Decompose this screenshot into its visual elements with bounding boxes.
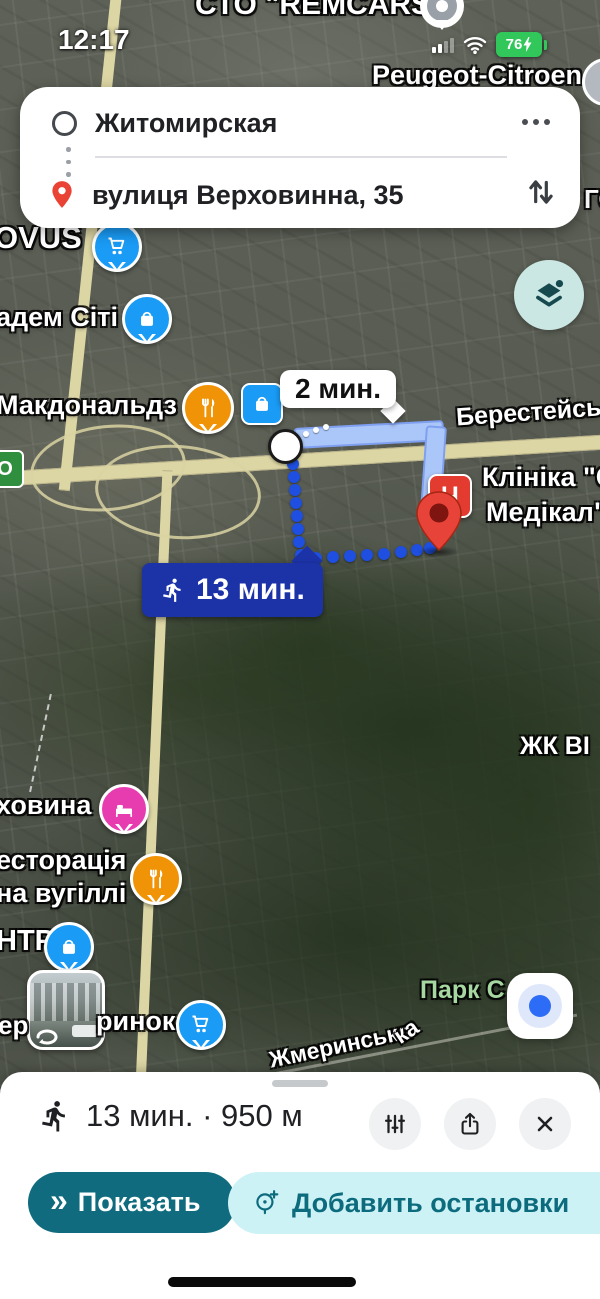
directions-bottom-sheet: 13 мин. · 950 м » <box>0 1072 600 1299</box>
map-layers-button[interactable] <box>514 260 584 330</box>
drive-time-bubble[interactable]: 2 мин. <box>280 370 396 408</box>
origin-value: Житомирская <box>95 108 277 139</box>
home-indicator <box>168 1277 356 1287</box>
poi-label-clinic-line2[interactable]: Медікал" <box>486 497 600 528</box>
mall-square-icon[interactable] <box>241 383 283 425</box>
supermarket-cart-pin[interactable] <box>92 222 142 272</box>
double-chevron-icon: » <box>50 1182 68 1219</box>
poi-label-zhk: ЖК ВІ <box>520 732 590 761</box>
gray-pin-hole <box>436 0 448 12</box>
park-label: Парк С <box>420 976 505 1005</box>
cellular-signal-icon <box>432 36 454 53</box>
status-icons: 76 <box>432 32 542 57</box>
poi-label-restaurant-line2[interactable]: на вугіллі <box>0 878 126 909</box>
add-stops-label: Добавить остановки <box>292 1188 569 1219</box>
thumbnail-building <box>30 983 102 1021</box>
route-summary: 13 мин. · 950 м <box>38 1098 303 1134</box>
origin-circle-icon <box>52 111 77 136</box>
destination-pin-marker[interactable] <box>412 490 466 554</box>
route-options-button[interactable] <box>369 1098 421 1150</box>
layers-icon <box>530 276 568 314</box>
destination-field[interactable]: вулиця Верховинна, 35 <box>20 169 580 221</box>
poi-label-er: ер <box>0 1010 28 1041</box>
add-stops-button[interactable]: Добавить остановки <box>228 1172 600 1234</box>
route-origin-marker[interactable] <box>268 429 303 464</box>
share-icon <box>457 1111 483 1137</box>
poi-label-mcdonalds[interactable]: Макдональдз <box>0 390 177 421</box>
route-summary-text: 13 мин. · 950 м <box>86 1098 303 1134</box>
share-route-button[interactable] <box>444 1098 496 1150</box>
show-button-label: Показать <box>78 1187 201 1218</box>
thumbnail-vehicle <box>72 1025 98 1037</box>
swap-endpoints-button[interactable] <box>526 175 556 209</box>
shopping-bag-icon <box>58 936 80 958</box>
charging-bolt-icon <box>523 37 532 52</box>
close-icon <box>533 1112 557 1136</box>
restaurant-pin[interactable] <box>182 382 234 434</box>
card-divider <box>95 156 507 158</box>
mall-bag-pin[interactable] <box>122 294 172 344</box>
battery-percent: 76 <box>506 36 523 53</box>
mall-bag-pin[interactable] <box>44 922 94 972</box>
fork-knife-icon <box>144 867 168 891</box>
maps-app-screen: СТО "REMCARS" Peugeot-Citroen ГО 12:17 7… <box>0 0 600 1299</box>
poi-label-hovyna[interactable]: ховина <box>0 790 91 821</box>
walk-time-label[interactable]: 13 мин. <box>142 563 323 617</box>
poi-label-akadem-siti[interactable]: адем Сіті <box>0 302 118 333</box>
restaurant-pin[interactable] <box>130 853 182 905</box>
origin-field[interactable]: Житомирская <box>20 95 580 151</box>
hotel-pin[interactable] <box>99 784 149 834</box>
route-card: Житомирская вулиця Верховинна, 35 <box>20 87 580 228</box>
wifi-icon <box>463 36 487 54</box>
bed-icon <box>112 797 136 821</box>
destination-value: вулиця Верховинна, 35 <box>92 180 404 211</box>
street-view-thumbnail[interactable] <box>27 970 105 1050</box>
road-shield: О <box>0 450 24 488</box>
cart-icon <box>105 236 129 258</box>
location-ring <box>518 984 562 1028</box>
street-view-arrow-icon <box>34 1025 64 1045</box>
gray-pin-ring <box>427 0 457 21</box>
shopping-bag-icon <box>251 393 273 415</box>
location-dot <box>529 995 551 1017</box>
walking-person-icon <box>38 1099 72 1133</box>
poi-label-sto-remcars[interactable]: СТО "REMCARS" <box>195 0 445 22</box>
show-route-button[interactable]: » Показать <box>28 1172 236 1233</box>
close-directions-button[interactable] <box>519 1098 571 1150</box>
poi-label-clinic-line1[interactable]: Клініка "С <box>482 462 600 493</box>
supermarket-cart-pin[interactable] <box>176 1000 226 1050</box>
more-options-button[interactable] <box>522 119 550 125</box>
fork-knife-icon <box>196 396 220 420</box>
poi-label-partial: ГО <box>584 184 600 215</box>
shopping-bag-icon <box>136 308 158 330</box>
add-stop-pin-icon <box>252 1189 280 1217</box>
status-time: 12:17 <box>58 24 130 56</box>
battery-indicator: 76 <box>496 32 542 57</box>
sheet-drag-handle[interactable] <box>272 1080 328 1087</box>
road-shield-letter: О <box>0 458 13 481</box>
walking-person-icon <box>160 577 186 603</box>
poi-label-rynok[interactable]: ринок <box>96 1006 175 1037</box>
destination-pin-icon <box>50 180 74 210</box>
my-location-button[interactable] <box>507 973 573 1039</box>
poi-label-restaurant-line1[interactable]: есторація <box>0 845 126 876</box>
tune-icon <box>382 1111 408 1137</box>
cart-icon <box>189 1014 213 1036</box>
walk-time-text: 13 мин. <box>196 573 305 607</box>
